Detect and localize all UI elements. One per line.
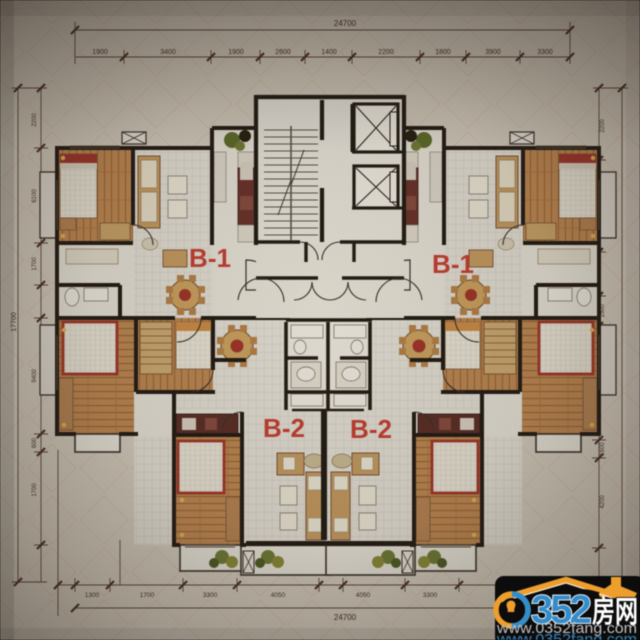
svg-text:www.0352fang.com: www.0352fang.com	[496, 631, 637, 640]
